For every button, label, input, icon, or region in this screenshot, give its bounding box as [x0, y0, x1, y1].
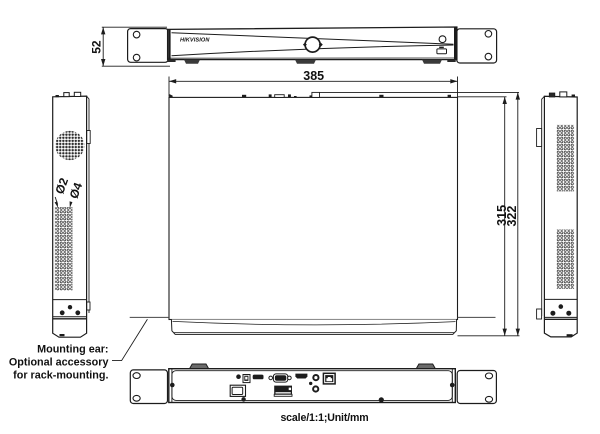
svg-text:Optional accessory: Optional accessory — [9, 356, 109, 368]
svg-text:52: 52 — [90, 40, 104, 54]
svg-text:HIKVISION: HIKVISION — [180, 37, 210, 43]
svg-text:for rack-mounting.: for rack-mounting. — [13, 369, 108, 381]
svg-text:scale/1:1;Unit/mm: scale/1:1;Unit/mm — [280, 412, 368, 424]
svg-text:322: 322 — [505, 206, 519, 227]
svg-text:385: 385 — [303, 69, 324, 83]
svg-text:Mounting ear:: Mounting ear: — [37, 343, 108, 355]
